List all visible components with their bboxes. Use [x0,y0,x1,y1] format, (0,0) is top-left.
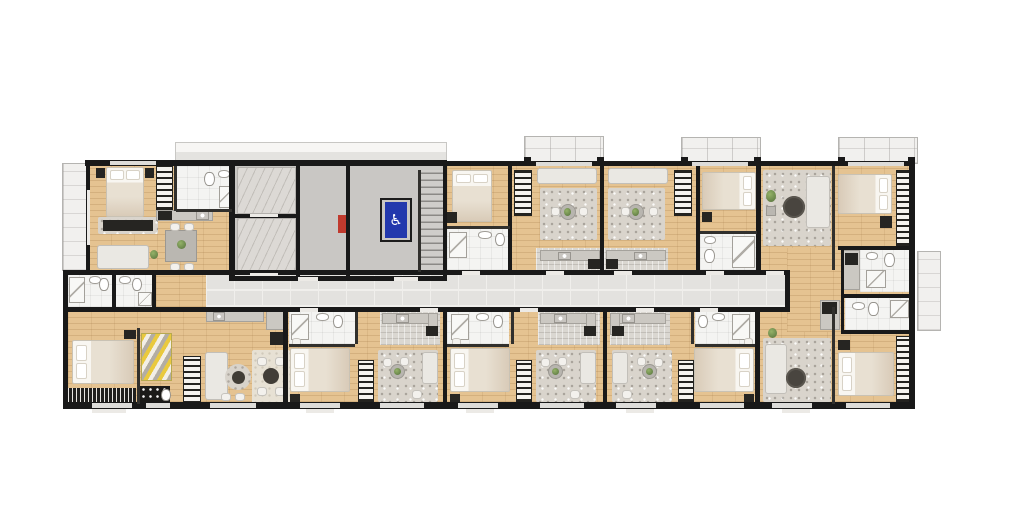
chaise [422,352,438,384]
toilet [698,315,708,328]
round-rug-unit-b5 [786,368,806,388]
balcony-post [681,157,688,164]
toilet [99,278,109,291]
nightstand [145,168,154,178]
unit-door [520,308,538,312]
bath-sink [852,302,865,310]
window-balcony-2 [692,162,748,166]
shelf-unit-b4 [678,360,694,402]
kitchen-sink [558,252,571,260]
table-plant [646,368,653,375]
nightstand [880,216,892,228]
bath-wall-unit-a-south [176,209,232,212]
west-bath-divider-1 [112,273,116,309]
bath-wall-studio-4-north [700,231,757,234]
dining-table-unit-b1 [263,368,279,384]
chair [383,358,392,367]
top-row-divider-3 [696,166,700,271]
top-wall-left [85,160,233,166]
table-plant [394,368,401,375]
shower [138,292,152,306]
cooktop [612,326,624,336]
unit-door [706,271,724,275]
bath-sink [119,276,131,284]
unit-door [420,308,438,312]
terrace-right [917,251,941,331]
bath-wall-studio-1-north [447,226,510,229]
bookshelf-unit-b1 [183,356,201,404]
chair [654,358,663,367]
bath-partition-b2 [355,312,358,344]
balcony-post [524,157,531,164]
fire-hydrant-box [338,215,346,233]
sofa-studio-2 [537,168,597,184]
bottom-row-divider-2 [443,307,447,407]
core-door-stairs [394,277,418,281]
bed-unit-b2 [290,348,350,392]
balcony-post [838,157,845,164]
top-row-divider-1 [508,166,512,271]
bath-wall-b4-south [695,344,755,347]
staircase [421,170,443,272]
balcony-top-2 [681,137,761,164]
sofa-unit-g [806,176,830,228]
cooktop [584,326,596,336]
living-bed-partition-bottom [832,307,835,404]
west-bath-divider-2 [152,273,156,309]
bath-wall-unit-b5-bottom [841,330,911,334]
nightstand [838,340,850,350]
dining-chair [184,223,194,231]
table-plant [552,368,559,375]
shelf-studio-2 [514,170,532,216]
balcony-door-left [87,190,90,245]
chair [579,207,588,216]
sofa-unit-b5 [765,344,787,394]
shower [890,300,909,318]
stair-rail [418,170,421,272]
window-balcony-3 [848,162,904,166]
pouf [570,390,580,399]
sofa-studio-3 [608,168,668,184]
bed-bench [103,220,153,231]
bed-studio-4 [702,172,756,210]
kitchen-shelves-unit-a [156,166,173,210]
unit-door [300,308,318,312]
corridor-east-wall [785,270,790,312]
bed-master-unit-b1 [72,340,134,384]
top-row-divider-4 [756,166,761,271]
bath-partition-b3 [511,312,514,344]
chaise [580,352,596,384]
shelf-studio-3 [674,170,692,216]
sofa-unit-a [97,245,149,269]
unit-door [700,308,718,312]
table-plant [177,240,186,249]
elevator-shaft-2 [237,218,296,272]
window-bottom [772,403,812,408]
pouf [221,393,231,401]
dining-chair [257,357,267,366]
unit-door [546,271,564,275]
entry-stoop-3 [466,409,494,413]
bottom-row-divider-4 [755,307,760,407]
bath-sink [476,313,489,321]
window-balcony-1 [536,162,592,166]
cooktop [588,259,600,269]
window-bottom [700,403,744,408]
dining-chair [170,223,180,231]
bath-wall-unit-b5-top [841,294,911,298]
shower [866,270,886,288]
dining-chair [257,387,267,396]
plant [150,250,158,259]
chaise [612,352,628,384]
balcony-post [754,157,761,164]
bath-wall-unit-g-north [838,246,911,250]
bath-sink [478,231,492,239]
balcony-top-1 [524,136,604,164]
bed-unit-a [106,167,144,217]
left-wall-lower [63,270,68,409]
unit-door [462,271,480,275]
unit-door [766,271,784,275]
elevator-shaft-1 [237,167,296,214]
shower [69,277,85,303]
window-bottom [146,403,170,408]
bed-studio-1 [452,170,492,222]
wardrobe-clothes-rack [68,388,136,403]
shelf-unit-b3 [516,360,532,402]
bed-unit-b4 [694,348,754,392]
west-hall-floor [156,275,206,307]
unit-door [636,308,654,312]
window-bottom [458,403,498,408]
window-bottom [846,403,890,408]
chair [621,207,630,216]
toilet [704,249,715,263]
shower [732,314,750,340]
table-plant [632,208,639,216]
window-bottom [210,403,256,408]
bath-wall-b2-south [289,344,355,347]
corridor-top-wall [63,270,790,275]
window-bottom [540,403,584,408]
plant [768,328,777,338]
elevator-door-2 [250,273,278,276]
kids-room-partition [137,328,140,404]
entry-stoop-5 [782,409,810,413]
shower [291,314,309,340]
balcony-top-3 [838,137,918,164]
chair [400,357,409,366]
pouf [412,390,422,399]
bath-wall-unit-a-west [174,166,177,211]
cooktop [845,253,858,265]
entry-stoop-1 [92,409,126,413]
pouf [235,393,245,401]
nightstand [447,212,457,223]
toilet [333,315,343,328]
cooktop [606,259,618,269]
wheelchair-accessibility-icon: ♿ [385,202,407,238]
core-top-wall [229,160,447,166]
core-west-wall [229,160,235,276]
toilet [493,315,503,328]
living-bed-partition-top [832,166,835,270]
shower [449,232,467,258]
balcony-left [62,163,88,271]
top-row-divider-2 [600,166,604,271]
toilet [204,172,215,186]
window-bottom [92,403,132,408]
bath-sink [866,252,878,260]
chair [649,207,658,216]
chair [558,357,567,366]
shower [732,236,755,268]
chair [637,357,646,366]
right-wall [909,160,915,409]
coffee-table [232,371,245,384]
cooktop [426,326,438,336]
stair-wall-left [346,162,350,280]
entry-stoop-2 [306,409,334,413]
core-east-wall [443,160,447,281]
kitchen-sink [396,314,409,323]
kitchen-sink [196,211,209,220]
toilet [868,302,879,316]
window-bottom [380,403,424,408]
kitchen-sink [554,314,567,323]
window-bottom [616,403,656,408]
unit-door [614,271,632,275]
bottom-row-divider-1 [283,307,288,407]
plant [766,190,776,202]
nightstand [96,168,105,178]
bottom-row-divider-3 [603,307,607,407]
kitchen-cabinet [266,310,284,330]
window-top-a [110,161,156,165]
kitchen-sink [634,252,647,260]
elevator-wall-right [296,162,300,276]
shelf-unit-b2 [358,360,374,402]
kitchen-sink [213,312,225,321]
bed-unit-b5 [838,352,894,396]
chair [551,207,560,216]
pouf [622,390,632,399]
kids-bed-chevron [141,333,172,381]
bath-sink [712,313,725,321]
nightstand [702,212,712,222]
side-table [766,206,776,216]
round-rug-unit-g [783,196,805,218]
nightstand [124,330,136,339]
bath-partition-b4 [691,312,694,344]
page: ♿ [0,0,1024,512]
toilet [884,253,895,267]
elevator-door-1 [250,214,278,217]
window-bottom [300,403,340,408]
balcony-post [908,157,915,164]
table-plant [564,208,571,216]
toilet [132,278,142,291]
bed-unit-g [838,174,892,214]
floor-plan: ♿ [0,0,1024,512]
cooktop [158,211,172,220]
kitchen-sink [622,314,635,323]
shower [451,314,469,340]
entry-stoop-4 [626,409,654,413]
bath-sink [704,236,716,244]
balcony-post [597,157,604,164]
bath-sink [316,313,329,321]
bed-unit-b3 [450,348,510,392]
core-door-hall [298,277,318,281]
bath-wall-b3-south [447,344,509,347]
toilet [495,233,505,246]
chair [541,358,550,367]
bath-wall-unit-g-west [841,248,844,334]
desk-chair [161,389,171,401]
